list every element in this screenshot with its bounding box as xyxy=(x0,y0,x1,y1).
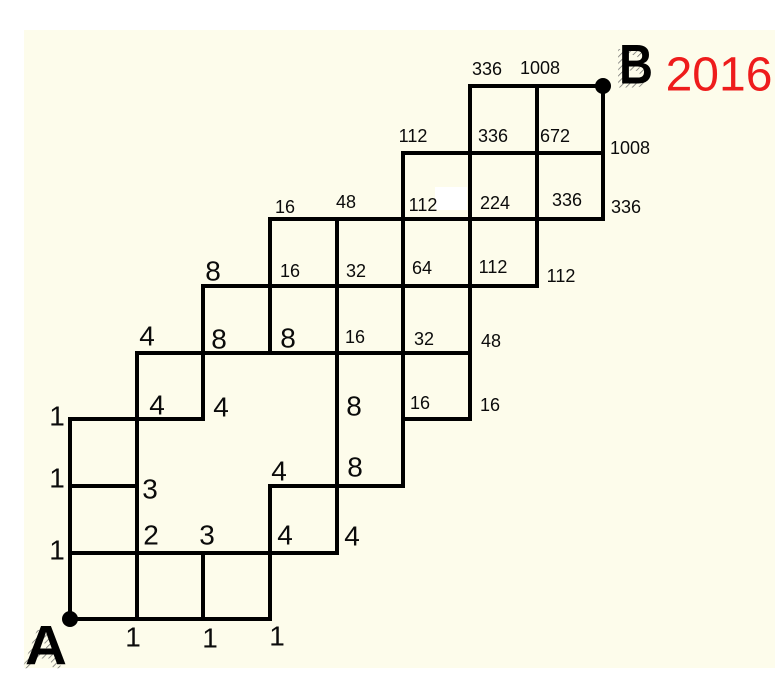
path-count-label: 336 xyxy=(472,59,502,79)
path-count-label: 4 xyxy=(344,521,360,552)
path-count-label: 16 xyxy=(275,197,295,217)
path-count-label: 112 xyxy=(479,257,508,277)
path-count-label: 336 xyxy=(478,126,508,146)
path-count-label: 1 xyxy=(49,463,65,494)
end-label: B xyxy=(619,33,653,96)
path-count-label: 1008 xyxy=(520,58,560,78)
path-count-label: 16 xyxy=(410,393,430,413)
path-count-label: 8 xyxy=(205,256,221,287)
path-count-label: 8 xyxy=(346,391,362,422)
path-count-label: 4 xyxy=(213,392,229,423)
path-count-label: 4 xyxy=(139,321,155,352)
path-count-label: 1 xyxy=(269,621,285,652)
end-point-dot xyxy=(595,78,611,94)
path-count-label: 16 xyxy=(345,327,365,347)
path-count-label: 1 xyxy=(202,623,218,654)
path-count-label: 2 xyxy=(143,520,159,551)
path-count-label: 336 xyxy=(611,197,641,217)
path-count-label: 1008 xyxy=(610,138,650,158)
path-count-label: 4 xyxy=(271,456,287,487)
path-count-label: 1 xyxy=(125,622,141,653)
path-count-label: 3 xyxy=(199,520,215,551)
path-count-label: 16 xyxy=(480,395,500,415)
path-count-label: 32 xyxy=(346,261,366,281)
path-count-label: 336 xyxy=(552,190,582,210)
path-count-label: 1 xyxy=(49,535,65,566)
path-count-label: 3 xyxy=(142,474,158,505)
path-count-label: 8 xyxy=(280,323,296,354)
path-count-label: 8 xyxy=(211,324,227,355)
path-count-label: 32 xyxy=(414,329,434,349)
path-count-label: 112 xyxy=(409,195,438,215)
path-count-label: 1 xyxy=(49,401,65,432)
path-count-label: 112 xyxy=(399,126,428,146)
path-count-label: 8 xyxy=(347,452,363,483)
path-count-label: 4 xyxy=(277,520,293,551)
path-count-label: 224 xyxy=(480,193,510,213)
path-count-label: 112 xyxy=(547,266,576,286)
path-count-label: 48 xyxy=(336,192,356,212)
path-count-label: 672 xyxy=(540,126,570,146)
total-paths-label: 2016 xyxy=(666,49,773,102)
white-patch xyxy=(435,187,467,210)
start-label: A xyxy=(25,614,67,677)
path-count-label: 4 xyxy=(149,390,165,421)
path-count-label: 48 xyxy=(481,331,501,351)
lattice-path-diagram: 1111112344348448161648816324881632641121… xyxy=(0,0,782,690)
path-count-label: 16 xyxy=(280,261,300,281)
path-count-label: 64 xyxy=(412,258,432,278)
